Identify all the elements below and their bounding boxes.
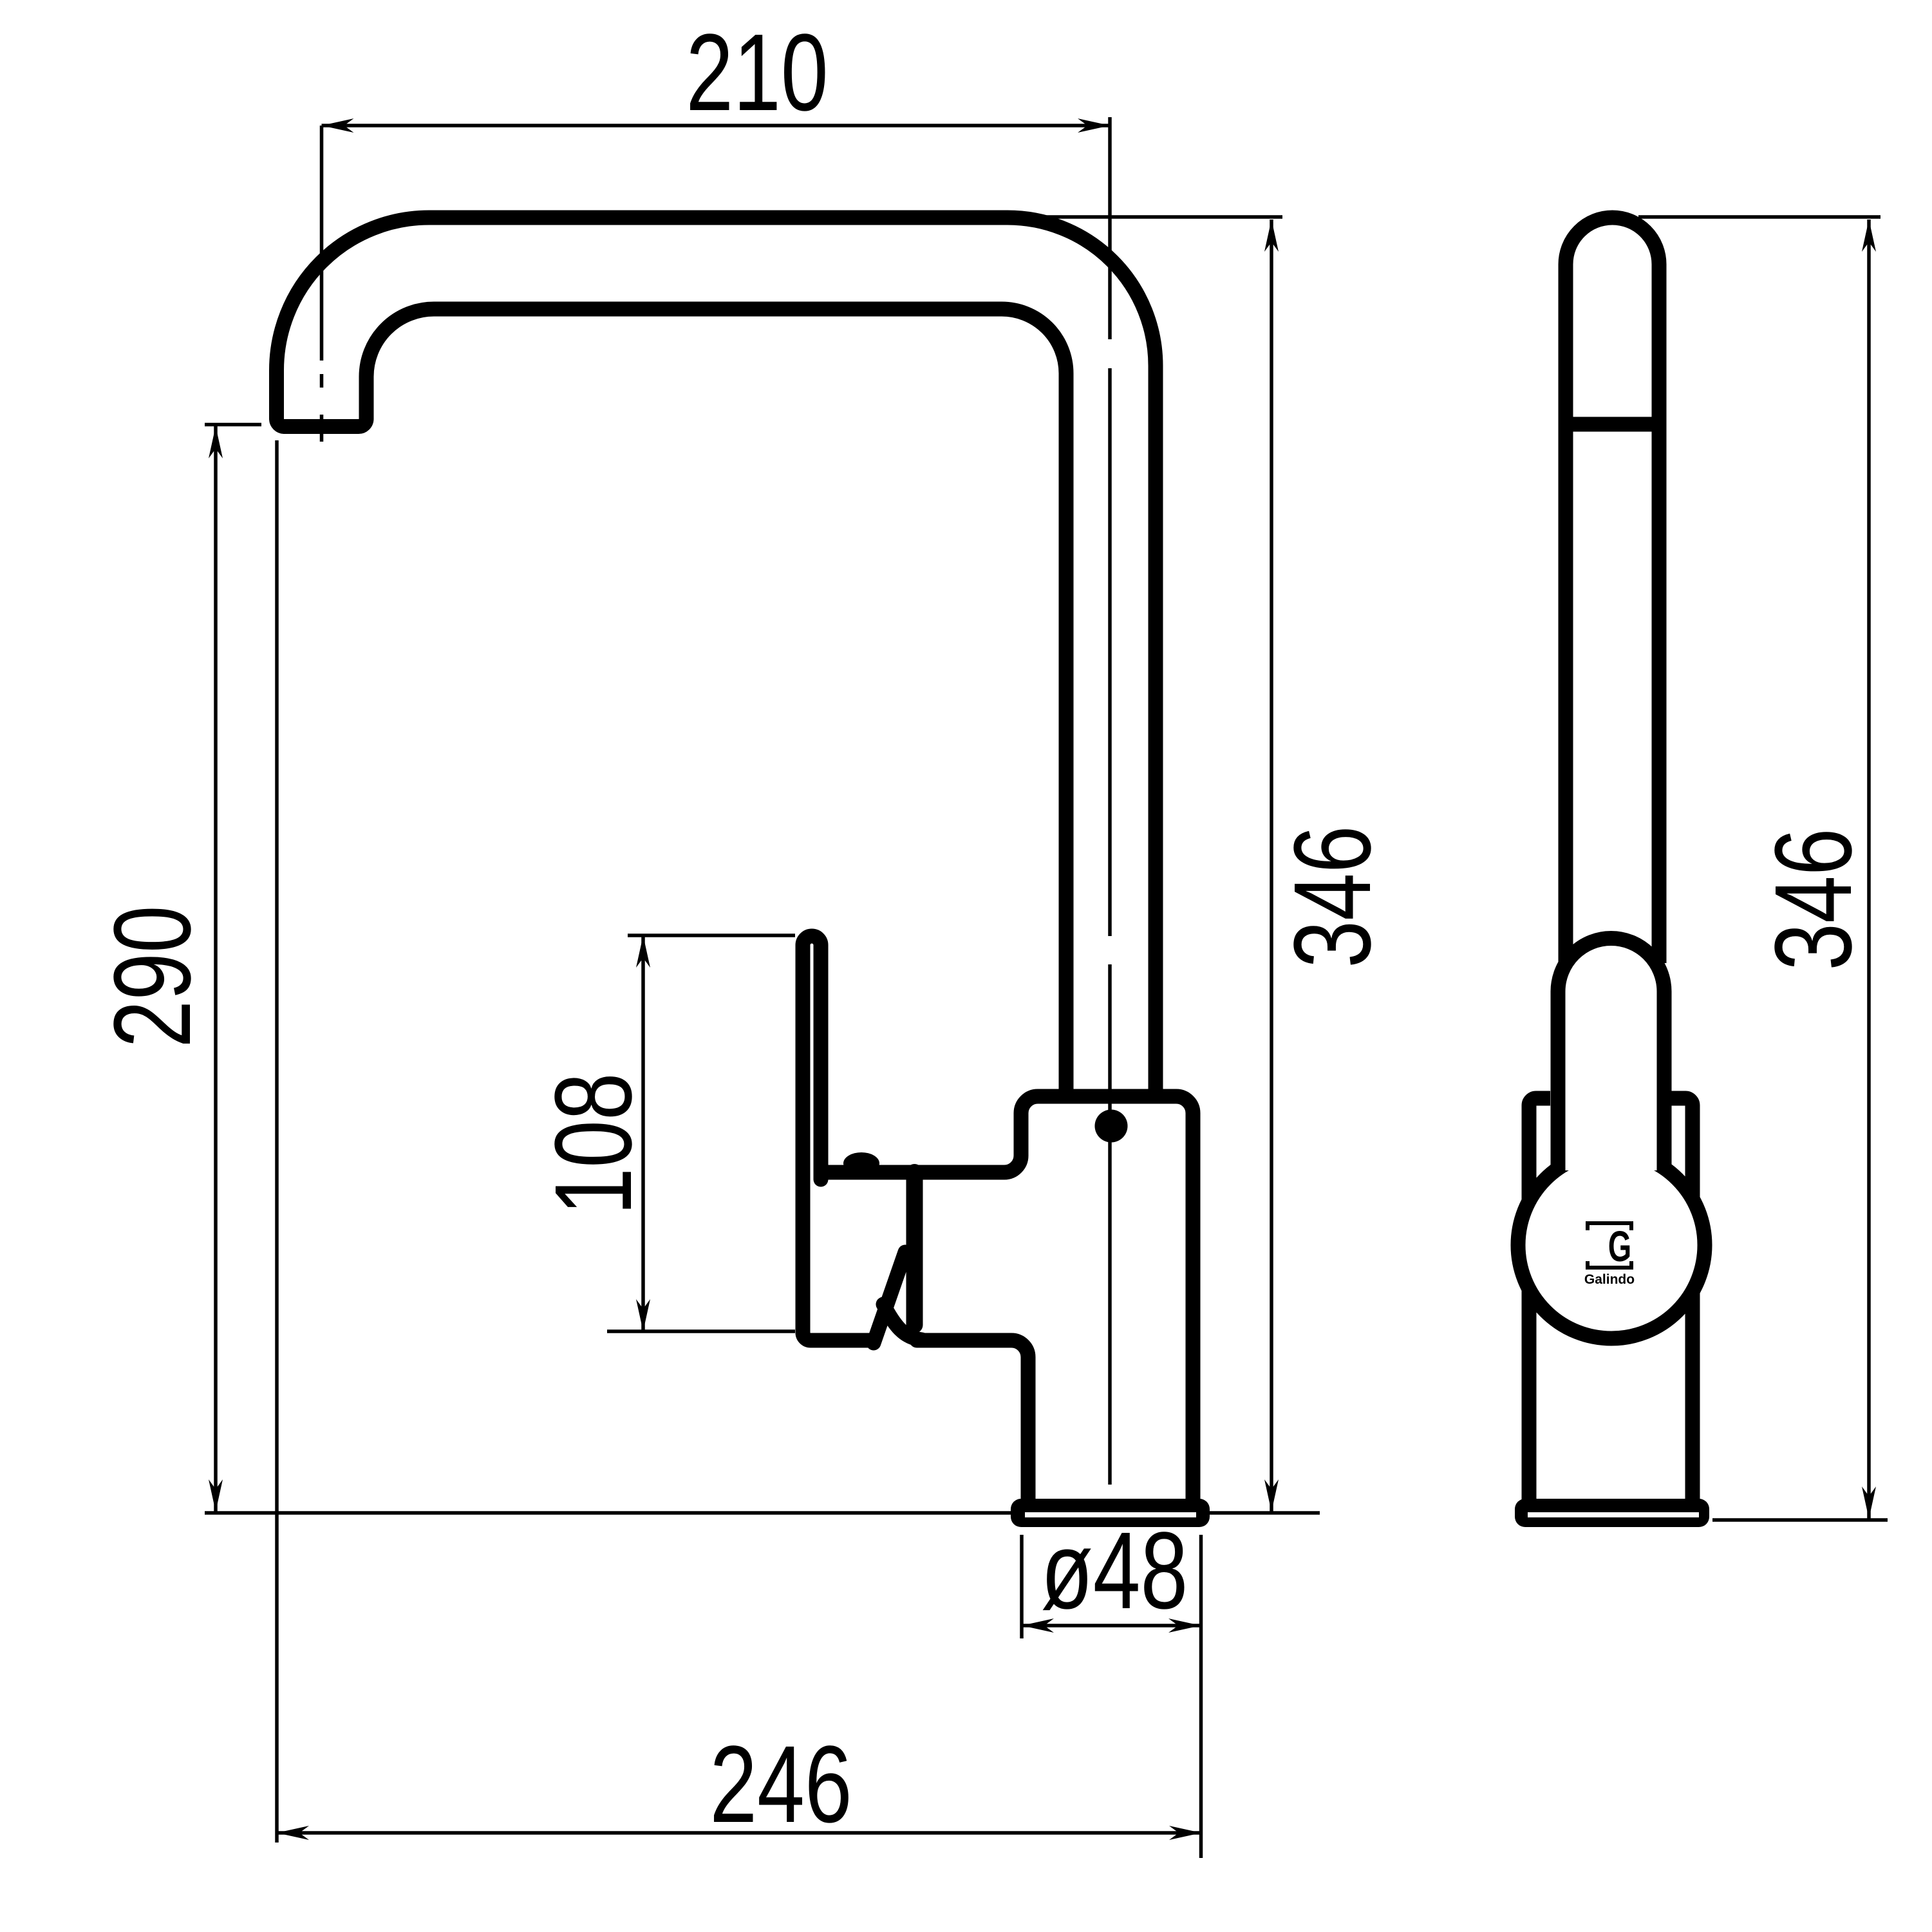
svg-text:290: 290 <box>91 905 214 1047</box>
svg-text:108: 108 <box>532 1073 655 1215</box>
svg-text:Galindo: Galindo <box>1584 1272 1635 1287</box>
svg-text:ø48: ø48 <box>1041 1510 1188 1632</box>
svg-text:346: 346 <box>1752 828 1875 970</box>
svg-text:246: 246 <box>709 1723 852 1846</box>
svg-text:210: 210 <box>686 12 828 134</box>
svg-text:G: G <box>1608 1223 1631 1271</box>
svg-text:346: 346 <box>1271 825 1394 968</box>
